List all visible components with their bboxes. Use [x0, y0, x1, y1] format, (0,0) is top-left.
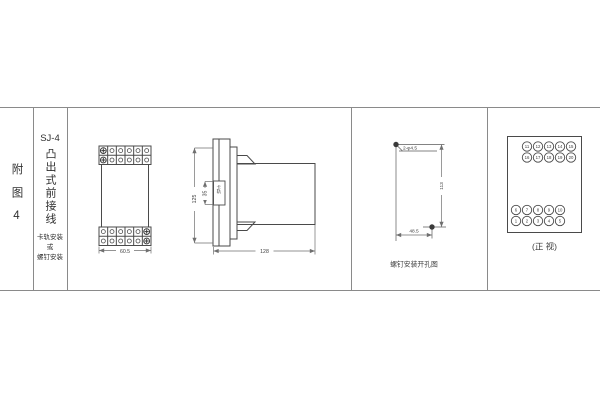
terminal-number: 7 [526, 208, 529, 213]
wiring-type-label: 凸出式前接线 [42, 148, 58, 226]
terminal-hole [127, 149, 131, 153]
height-dim-label: 125 [192, 195, 198, 204]
terminal-hole [119, 239, 123, 243]
relay-model-label: SJ-4 [40, 133, 60, 144]
terminal-front-view-drawing: 11 12 13 14 15 16 17 18 19 20 6 7 8 9 10… [500, 130, 600, 260]
terminal-number: 20 [569, 155, 574, 160]
title-cell: SJ-4 凸出式前接线 卡轨安装 或 螺钉安装 [33, 107, 67, 290]
screw-head-icon [144, 238, 150, 244]
terminal-number: 6 [515, 208, 518, 213]
terminal-hole [110, 239, 114, 243]
terminal-hole [110, 230, 114, 234]
terminal-hole [136, 230, 140, 234]
terminal-circles [511, 142, 575, 226]
terminal-hole [101, 230, 105, 234]
terminal-hole [110, 158, 114, 162]
width-dim-label: 60.5 [120, 249, 130, 255]
mounting-note-line: 或 [37, 243, 63, 253]
terminal-number: 16 [525, 155, 530, 160]
top-clamp-profile [237, 156, 255, 165]
terminal-number: 19 [558, 155, 563, 160]
screw-head-icon [100, 157, 106, 163]
divider-terminal-section [487, 107, 488, 291]
front-view-caption: (正 视) [532, 242, 557, 252]
terminal-number: 10 [558, 208, 563, 213]
terminal-number: 14 [558, 144, 563, 149]
screw-head-icon [100, 148, 106, 154]
horizontal-dim-label: 48.5 [409, 229, 419, 235]
terminal-hole [127, 158, 131, 162]
band-top-line [0, 107, 600, 108]
drill-drawing-caption: 螺钉安装开孔图 [390, 260, 438, 269]
terminal-number: 5 [559, 219, 562, 224]
relay-case-front [102, 165, 149, 228]
rail-label: 卡轨 [216, 184, 222, 195]
figure-number-cell: 附图4 [0, 107, 33, 290]
terminal-hole [145, 158, 149, 162]
mounting-note-line: 卡轨安装 [37, 233, 63, 243]
terminal-number: 1 [515, 219, 518, 224]
base-plate-profile [230, 147, 237, 239]
divider-title-column [67, 107, 68, 291]
relay-front-body [99, 146, 151, 246]
relay-side-outline-drawing: 卡轨 125 35 128 [185, 135, 350, 265]
rail-dim-label: 35 [203, 191, 209, 197]
drill-hole-drawing: 2-φ4.5 113 48.5 螺钉安装开孔图 [368, 135, 482, 275]
terminal-hole [119, 158, 123, 162]
vertical-dim-label: 113 [439, 182, 445, 190]
terminal-hole [136, 239, 140, 243]
bottom-clamp-profile [237, 222, 255, 231]
divider-drill-section [351, 107, 352, 291]
terminal-hole [127, 230, 131, 234]
relay-side-body [213, 139, 315, 246]
mounting-note-line: 螺钉安装 [37, 253, 63, 263]
terminal-number: 9 [548, 208, 551, 213]
figure-number-label: 附图4 [9, 163, 25, 234]
terminal-number: 13 [547, 144, 552, 149]
terminal-number: 4 [548, 219, 551, 224]
terminal-number: 11 [525, 144, 530, 149]
relay-case-side [237, 164, 315, 225]
mounting-hole [429, 224, 434, 229]
terminal-hole [136, 149, 140, 153]
terminal-hole [101, 239, 105, 243]
terminal-hole [145, 149, 149, 153]
screw-head-icon [144, 229, 150, 235]
terminal-hole [119, 149, 123, 153]
mounting-notes: 卡轨安装 或 螺钉安装 [37, 233, 63, 263]
terminal-number: 18 [547, 155, 552, 160]
terminal-number: 17 [536, 155, 541, 160]
terminal-number: 12 [536, 144, 541, 149]
terminal-hole [110, 149, 114, 153]
terminal-number: 3 [537, 219, 540, 224]
terminal-hole [127, 239, 131, 243]
hole-size-label: 2-φ4.5 [403, 146, 417, 152]
terminal-number: 2 [526, 219, 529, 224]
terminal-hole [136, 158, 140, 162]
terminal-number: 15 [569, 144, 574, 149]
band-bottom-line [0, 290, 600, 291]
terminal-hole [119, 230, 123, 234]
depth-dim-label: 128 [260, 249, 269, 255]
mounting-hole [393, 142, 398, 147]
terminal-number: 8 [537, 208, 540, 213]
